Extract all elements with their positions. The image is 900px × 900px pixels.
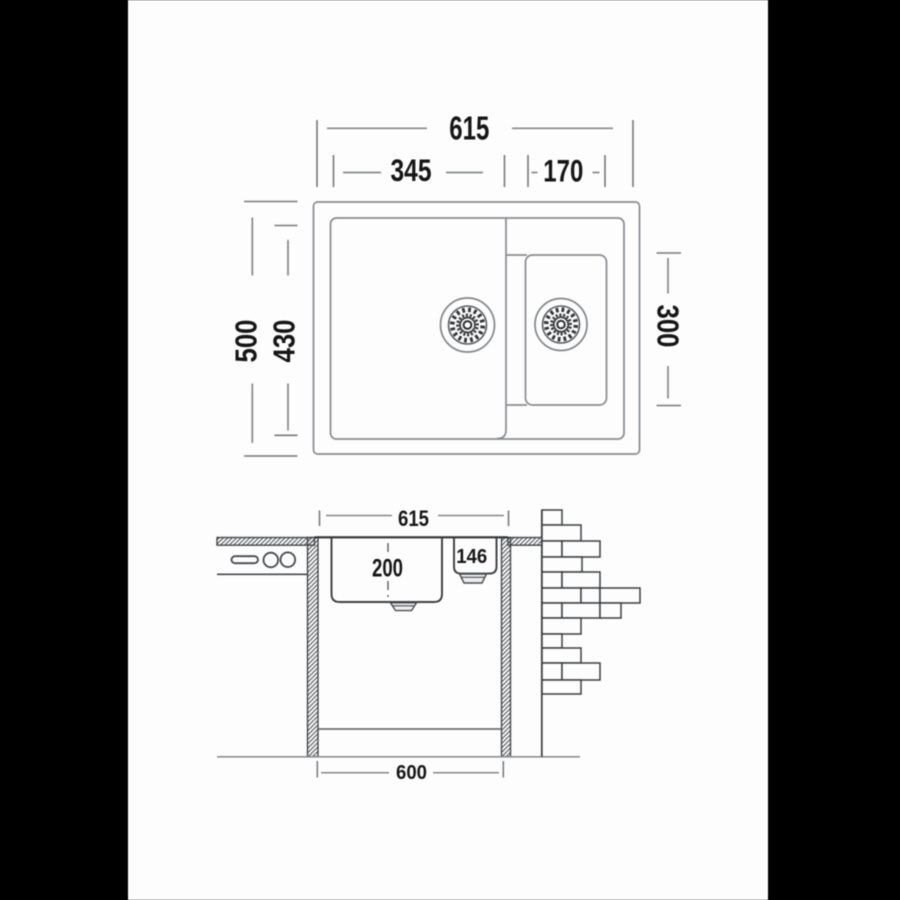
svg-text:200: 200 bbox=[372, 555, 403, 583]
svg-text:600: 600 bbox=[396, 761, 427, 784]
svg-text:430: 430 bbox=[267, 320, 302, 363]
svg-text:146: 146 bbox=[456, 546, 487, 568]
svg-text:300: 300 bbox=[651, 305, 686, 348]
svg-text:345: 345 bbox=[391, 152, 432, 188]
svg-text:500: 500 bbox=[228, 320, 263, 363]
svg-text:615: 615 bbox=[398, 506, 429, 531]
svg-text:615: 615 bbox=[449, 110, 489, 147]
svg-text:170: 170 bbox=[543, 153, 583, 189]
